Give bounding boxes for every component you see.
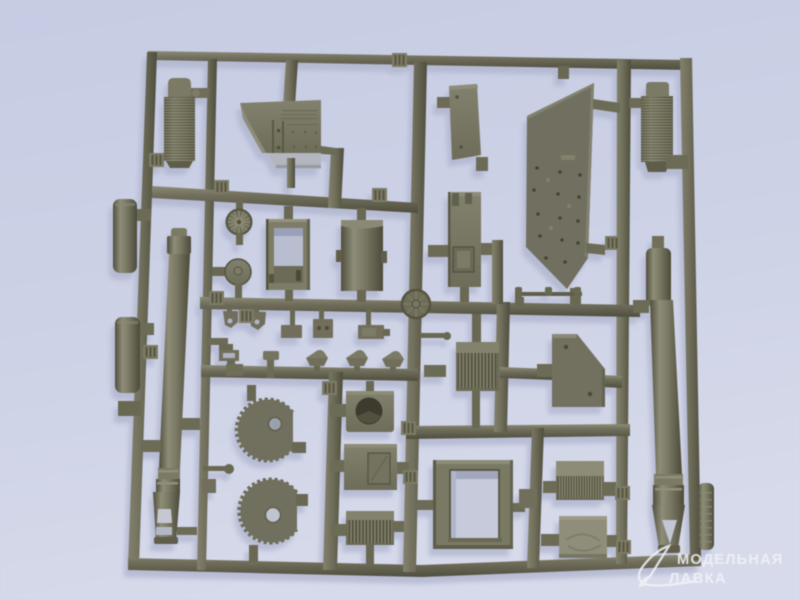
svg-text:МОДЕЛЬНАЯ: МОДЕЛЬНАЯ	[677, 552, 784, 568]
